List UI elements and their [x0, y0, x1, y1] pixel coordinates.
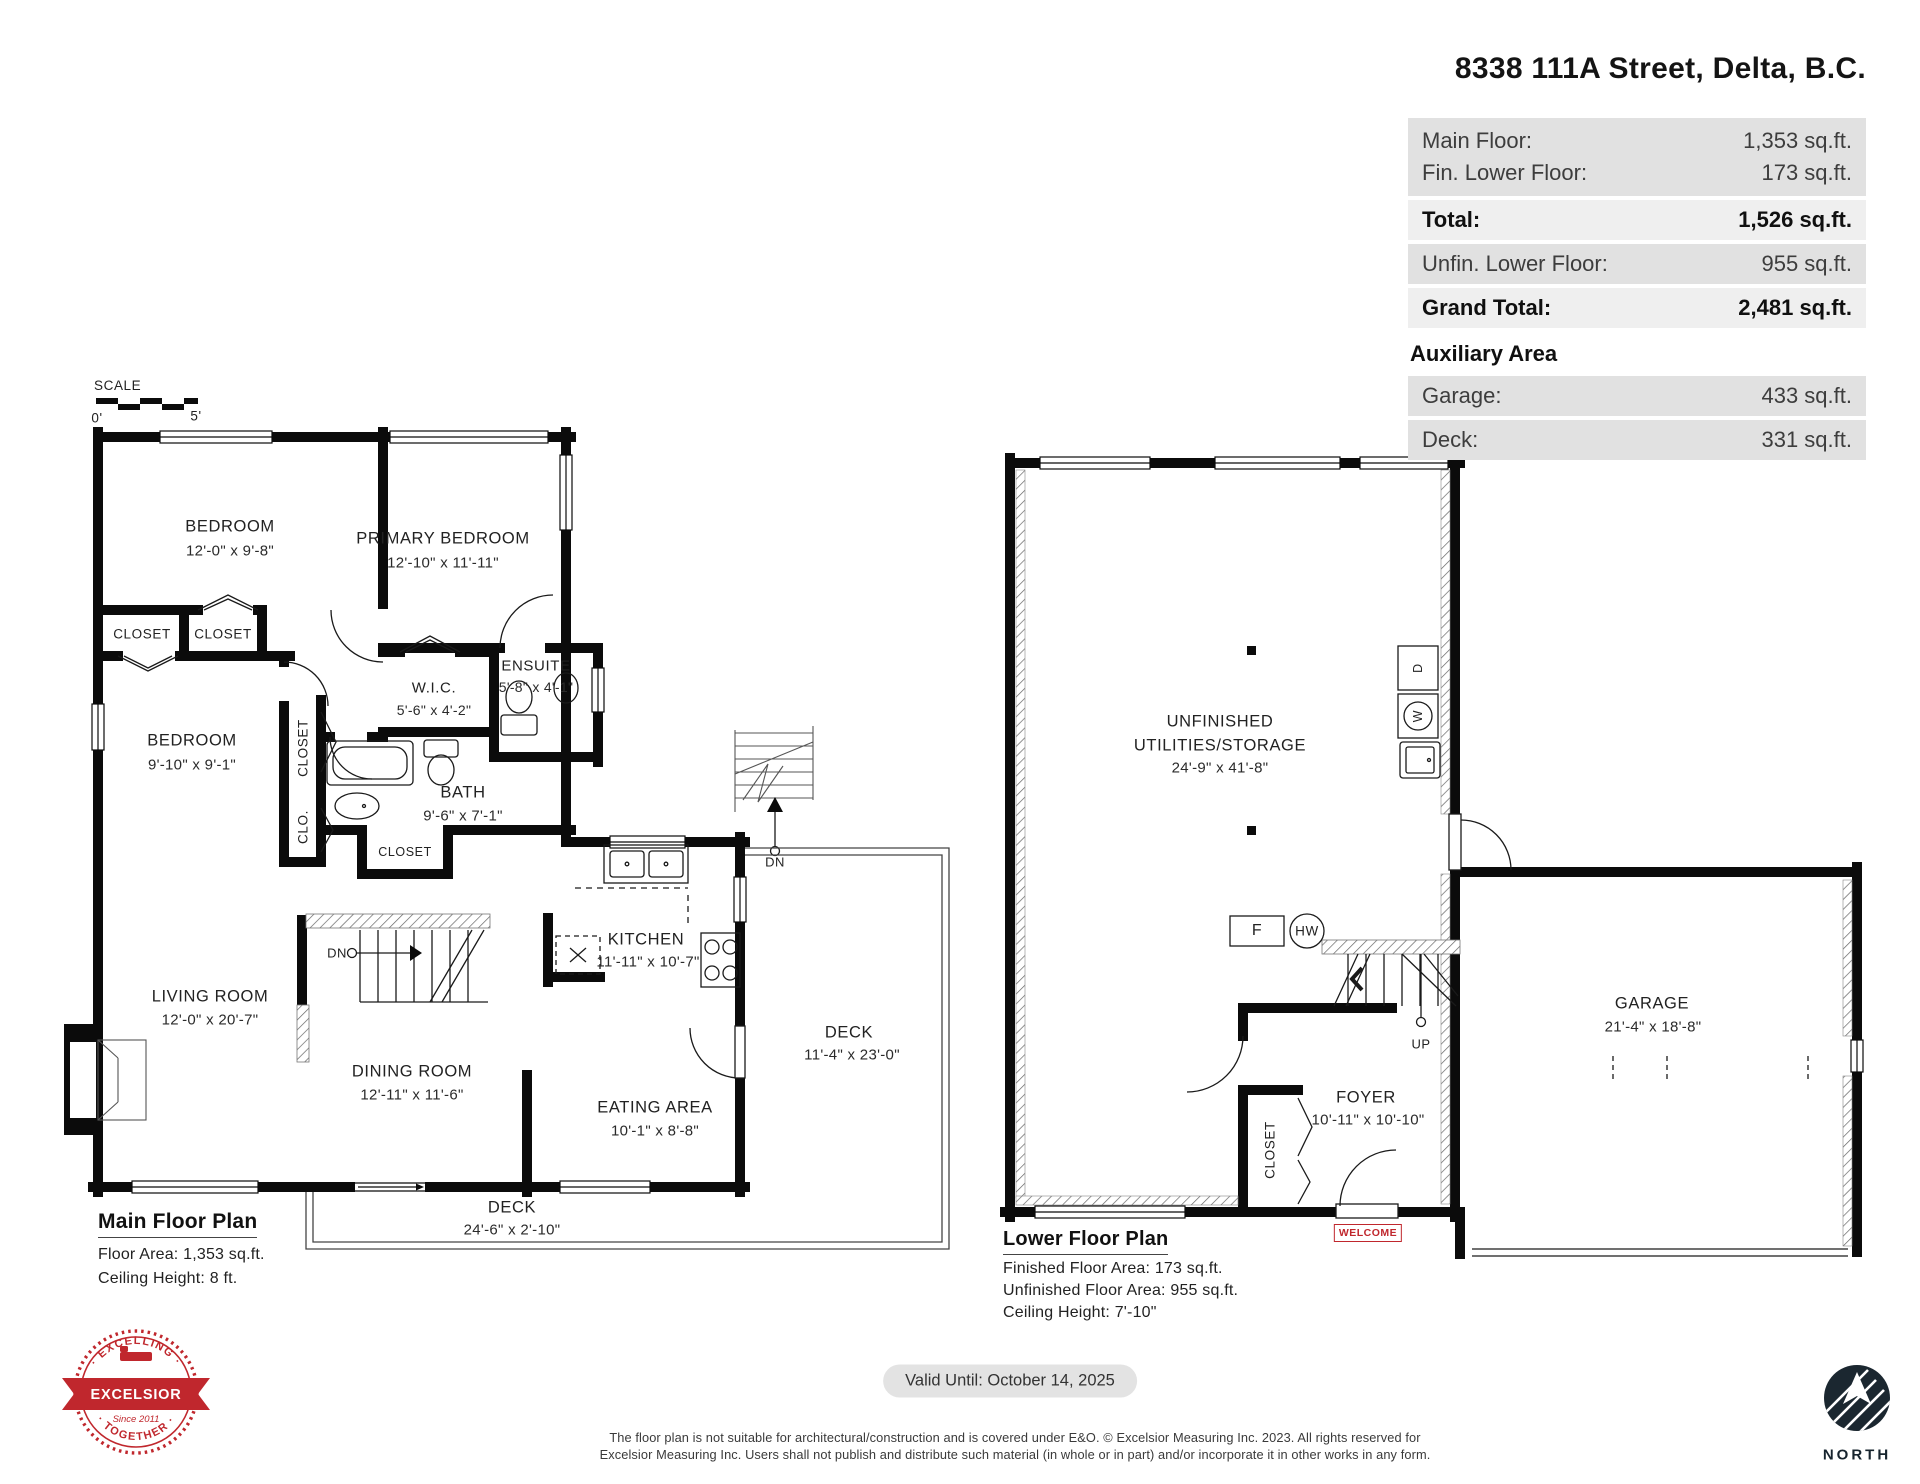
row-value: 955 sq.ft.: [1761, 251, 1852, 277]
row-value: 1,526 sq.ft.: [1738, 207, 1852, 233]
room-label-deck-bottom: DECK: [488, 1199, 536, 1218]
room-dims-primary-bedroom: 12'-10" x 11'-11": [387, 555, 499, 572]
valid-until-badge: Valid Until: October 14, 2025: [883, 1365, 1137, 1398]
table-row-total: Total: 1,526 sq.ft.: [1408, 200, 1866, 240]
north-icon: [1824, 1365, 1892, 1442]
floor-plan-page: · EXCELLING · · TOGETHER · EXCELSIOR Sin…: [0, 0, 1920, 1484]
auxiliary-title: Auxiliary Area: [1410, 341, 1557, 367]
room-label-bedroom2: BEDROOM: [147, 732, 236, 751]
room-label-living-room: LIVING ROOM: [152, 988, 269, 1007]
room-label-primary-bedroom: PRIMARY BEDROOM: [356, 530, 529, 549]
welcome-mat: WELCOME: [1334, 1224, 1402, 1242]
room-dims-bedroom2: 9'-10" x 9'-1": [148, 757, 236, 774]
row-value: 1,353 sq.ft.: [1743, 128, 1852, 154]
lower-floor-plan-title: Lower Floor Plan: [1003, 1228, 1168, 1255]
furnace-label: F: [1252, 922, 1262, 940]
table-row-deck: Deck: 331 sq.ft.: [1408, 420, 1866, 460]
main-floor-ceiling-note: Ceiling Height: 8 ft.: [98, 1270, 237, 1288]
room-label-closet-bath: CLOSET: [378, 845, 432, 859]
room-dims-eating-area: 10'-1" x 8'-8": [611, 1123, 699, 1140]
room-label-closet-b: CLOSET: [194, 627, 252, 642]
room-label-closet-side: CLOSET: [296, 719, 311, 777]
room-label-clo: CLO.: [296, 810, 311, 844]
stamp-name: EXCELSIOR: [91, 1387, 182, 1403]
row-value: 433 sq.ft.: [1761, 383, 1852, 409]
disclaimer-line2: Excelsior Measuring Inc. Users shall not…: [465, 1447, 1565, 1462]
room-label-dining-room: DINING ROOM: [352, 1063, 472, 1082]
row-label: Garage:: [1422, 383, 1502, 409]
stamp-since: Since 2011: [113, 1414, 160, 1425]
dryer-label: D: [1411, 663, 1425, 673]
room-label-wic: W.I.C.: [412, 680, 456, 697]
room-dims-kitchen: 11'-11" x 10'-7": [596, 954, 699, 971]
lower-floor-hatching: [1016, 470, 1852, 1246]
scale-bar: [96, 398, 198, 410]
room-dims-deck-bottom: 24'-6" x 2'-10": [464, 1222, 561, 1239]
room-dims-garage: 21'-4" x 18'-8": [1605, 1019, 1702, 1036]
room-label-utilities-line1: UNFINISHED: [1167, 713, 1274, 732]
page-title-address: 8338 111A Street, Delta, B.C.: [1408, 52, 1866, 86]
row-value: 2,481 sq.ft.: [1738, 295, 1852, 321]
room-dims-bath: 9'-6" x 7'-1": [423, 808, 502, 825]
stairs-down-label-interior: DN: [327, 946, 347, 961]
lower-floor-unfinished-note: Unfinished Floor Area: 955 sq.ft.: [1003, 1282, 1238, 1300]
room-dims-dining-room: 12'-11" x 11'-6": [360, 1087, 463, 1104]
excelsior-stamp: · EXCELLING · · TOGETHER · EXCELSIOR Sin…: [62, 1331, 210, 1453]
row-label: Fin. Lower Floor:: [1422, 160, 1587, 186]
room-label-bedroom1: BEDROOM: [185, 518, 274, 537]
room-label-kitchen: KITCHEN: [608, 931, 685, 950]
row-label: Deck:: [1422, 427, 1478, 453]
room-dims-ensuite: 5'-8" x 4'-1": [499, 679, 573, 695]
room-label-eating-area: EATING AREA: [597, 1099, 712, 1118]
row-label: Total:: [1422, 207, 1480, 233]
washer-label: W: [1411, 710, 1425, 722]
main-floor-plan-title: Main Floor Plan: [98, 1210, 257, 1238]
table-row-garage: Garage: 433 sq.ft.: [1408, 376, 1866, 416]
row-value: 173 sq.ft.: [1761, 160, 1852, 186]
table-row-unfin: Unfin. Lower Floor: 955 sq.ft.: [1408, 244, 1866, 284]
lower-floor-walls: [1005, 458, 1857, 1254]
north-label: NORTH: [1823, 1447, 1891, 1464]
row-label: Main Floor:: [1422, 128, 1532, 154]
room-label-closet-lower: CLOSET: [1263, 1121, 1278, 1179]
row-label: Unfin. Lower Floor:: [1422, 251, 1608, 277]
lower-floor-finished-note: Finished Floor Area: 173 sq.ft.: [1003, 1260, 1223, 1278]
room-dims-bedroom1: 12'-0" x 9'-8": [186, 543, 274, 560]
room-dims-living-room: 12'-0" x 20'-7": [162, 1012, 259, 1029]
room-label-foyer: FOYER: [1336, 1089, 1396, 1108]
scale-label: SCALE: [94, 378, 141, 393]
room-label-ensuite: ENSUITE: [501, 658, 570, 675]
room-label-utilities-line2: UTILITIES/STORAGE: [1134, 737, 1306, 756]
room-label-closet-a: CLOSET: [113, 627, 171, 642]
room-label-bath: BATH: [440, 784, 485, 803]
scale-zero: 0': [91, 411, 102, 426]
row-label: Grand Total:: [1422, 295, 1551, 321]
table-row-auxiliary-header: Auxiliary Area: [1408, 332, 1866, 372]
stairs-down-label-deck: DN: [765, 855, 785, 870]
room-dims-foyer: 10'-11" x 10'-10": [1312, 1112, 1425, 1129]
stairs-up-label: UP: [1411, 1037, 1430, 1052]
row-value: 331 sq.ft.: [1761, 427, 1852, 453]
room-dims-deck-right: 11'-4" x 23'-0": [804, 1047, 900, 1064]
room-dims-wic: 5'-6" x 4'-2": [397, 702, 471, 718]
hot-water-label: HW: [1295, 924, 1319, 939]
disclaimer-line1: The floor plan is not suitable for archi…: [465, 1430, 1565, 1445]
table-row-main-fin: Main Floor: 1,353 sq.ft. Fin. Lower Floo…: [1408, 118, 1866, 196]
table-row-grand-total: Grand Total: 2,481 sq.ft.: [1408, 288, 1866, 328]
lower-floor-ceiling-note: Ceiling Height: 7'-10": [1003, 1304, 1157, 1322]
area-summary-table: Main Floor: 1,353 sq.ft. Fin. Lower Floo…: [1408, 118, 1866, 464]
room-label-deck-right: DECK: [825, 1024, 873, 1043]
room-dims-utilities: 24'-9" x 41'-8": [1172, 760, 1269, 777]
room-label-garage: GARAGE: [1615, 995, 1689, 1014]
scale-five: 5': [190, 409, 201, 424]
main-floor-area-note: Floor Area: 1,353 sq.ft.: [98, 1246, 265, 1264]
